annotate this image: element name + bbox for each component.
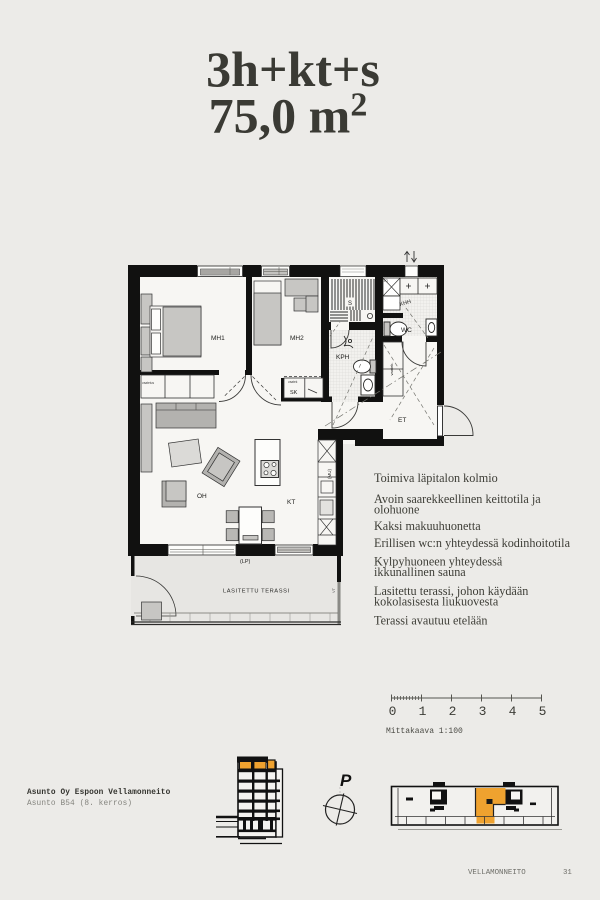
svg-text:OH: OH (197, 493, 207, 500)
svg-text:Mittakaava 1:100: Mittakaava 1:100 (386, 727, 463, 736)
svg-text:Asunto Oy Espoon Vellamonneito: Asunto Oy Espoon Vellamonneito (27, 789, 171, 797)
svg-text:LTO: LTO (382, 279, 388, 283)
svg-text:(MU): (MU) (327, 469, 332, 479)
svg-text:KPH: KPH (336, 354, 350, 361)
svg-text:ikkunallinen sauna: ikkunallinen sauna (374, 565, 466, 579)
svg-text:(LP): (LP) (240, 559, 251, 565)
svg-text:LASITETTU TERASSI: LASITETTU TERASSI (223, 589, 290, 595)
svg-text:P: P (340, 771, 352, 790)
svg-text:olohuone: olohuone (374, 503, 419, 517)
svg-text:SK: SK (290, 390, 298, 396)
svg-text:VT: VT (331, 587, 336, 593)
svg-text:3: 3 (479, 704, 487, 719)
svg-text:vaatek: vaatek (288, 380, 298, 384)
svg-text:Toimiva läpitalon kolmio: Toimiva läpitalon kolmio (374, 471, 498, 485)
svg-text:2: 2 (449, 704, 457, 719)
svg-text:KT: KT (287, 499, 295, 506)
svg-text:MH1: MH1 (211, 335, 225, 342)
svg-text:ET: ET (398, 417, 406, 424)
svg-text:4: 4 (509, 704, 517, 719)
svg-text:Terassi avautuu etelään: Terassi avautuu etelään (374, 614, 488, 628)
svg-text:5: 5 (539, 704, 547, 719)
svg-text:kokolasisesta liukuovesta: kokolasisesta liukuovesta (374, 595, 499, 609)
svg-text:MH2: MH2 (290, 335, 304, 342)
svg-text:75,0 m2: 75,0 m2 (209, 87, 368, 144)
svg-text:0: 0 (389, 704, 397, 719)
svg-text:Kaksi makuuhuonetta: Kaksi makuuhuonetta (374, 519, 481, 533)
svg-text:VELLAMONNEITO: VELLAMONNEITO (468, 869, 526, 877)
svg-text:vaatek.: vaatek. (389, 363, 394, 376)
svg-text:Asunto B54 (8. kerros): Asunto B54 (8. kerros) (27, 800, 132, 808)
svg-text:vaatetus: vaatetus (142, 381, 154, 385)
svg-text:S: S (348, 301, 352, 307)
svg-text:WC: WC (401, 327, 412, 334)
svg-text:1: 1 (419, 704, 427, 719)
svg-text:Erillisen wc:n yhteydessä kodi: Erillisen wc:n yhteydessä kodinhoitotila (374, 536, 571, 550)
svg-text:31: 31 (563, 869, 572, 877)
